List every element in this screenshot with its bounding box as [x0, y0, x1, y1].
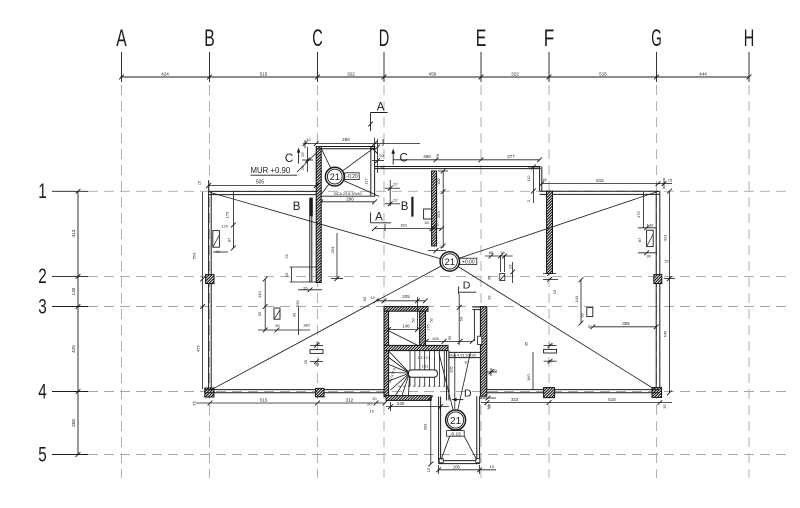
svg-text:50: 50: [448, 336, 452, 340]
svg-text:5: 5: [38, 443, 47, 466]
svg-text:240: 240: [397, 401, 405, 406]
svg-text:131: 131: [422, 363, 429, 368]
svg-text:1 3 1 3 1: 1 3 1 3 1: [418, 356, 431, 360]
svg-text:179: 179: [225, 211, 230, 218]
svg-text:2: 2: [38, 265, 47, 288]
svg-text:MUR +0.90: MUR +0.90: [251, 166, 291, 175]
svg-text:B: B: [293, 201, 301, 213]
svg-text:205: 205: [450, 366, 454, 372]
svg-text:515: 515: [260, 71, 268, 76]
svg-text:D: D: [463, 280, 471, 292]
svg-text:15: 15: [426, 467, 431, 472]
svg-text:105: 105: [432, 336, 439, 341]
svg-text:545: 545: [663, 330, 668, 337]
svg-text:26: 26: [300, 152, 305, 157]
svg-text:3: 3: [38, 295, 47, 318]
svg-text:322: 322: [511, 71, 519, 76]
svg-text:515: 515: [260, 398, 268, 403]
svg-text:21: 21: [445, 257, 456, 268]
svg-text:106: 106: [453, 464, 461, 469]
svg-text:10: 10: [434, 222, 439, 227]
svg-text:35: 35: [488, 276, 492, 280]
svg-text:553: 553: [191, 252, 196, 259]
svg-text:55: 55: [257, 311, 262, 316]
svg-text:183: 183: [400, 223, 407, 228]
svg-text:102: 102: [436, 177, 441, 184]
svg-text:180: 180: [303, 322, 310, 327]
svg-text:195: 195: [296, 300, 300, 306]
svg-text:322: 322: [347, 71, 355, 76]
svg-text:87: 87: [227, 237, 232, 242]
svg-text:20: 20: [439, 244, 444, 249]
svg-text:140: 140: [574, 295, 579, 302]
svg-text:15: 15: [552, 289, 557, 294]
svg-text:1: 1: [38, 180, 47, 203]
svg-text:205: 205: [402, 294, 410, 299]
svg-text:-0.20: -0.20: [346, 174, 358, 180]
svg-text:112: 112: [526, 175, 531, 182]
svg-text:35: 35: [524, 342, 528, 346]
svg-text:20: 20: [372, 397, 376, 401]
svg-text:C: C: [312, 25, 323, 52]
svg-text:22: 22: [393, 198, 398, 203]
svg-text:15: 15: [198, 181, 202, 185]
svg-text:-0.15: -0.15: [450, 431, 461, 437]
svg-text:305: 305: [622, 321, 630, 326]
svg-text:B: B: [401, 201, 409, 213]
svg-text:15: 15: [487, 403, 492, 408]
svg-text:G: G: [651, 25, 662, 52]
svg-text:425: 425: [71, 345, 76, 353]
svg-text:87: 87: [637, 237, 642, 242]
svg-text:30: 30: [291, 312, 296, 317]
svg-text:20: 20: [300, 165, 305, 170]
svg-text:20: 20: [303, 359, 308, 364]
svg-text:30: 30: [646, 254, 651, 259]
svg-text:53: 53: [379, 153, 384, 158]
svg-text:C: C: [399, 153, 407, 165]
svg-text:254: 254: [330, 246, 335, 253]
svg-text:21: 21: [330, 172, 340, 182]
svg-text:10: 10: [370, 408, 375, 413]
svg-text:20: 20: [284, 272, 289, 277]
svg-text:303: 303: [423, 423, 428, 430]
svg-text:140: 140: [71, 287, 76, 295]
svg-text:456: 456: [429, 71, 437, 76]
svg-text:4: 4: [38, 380, 47, 403]
svg-text:30: 30: [275, 323, 280, 328]
svg-text:A: A: [375, 212, 383, 224]
svg-text:H: H: [744, 25, 755, 52]
svg-text:117: 117: [363, 177, 368, 184]
svg-text:E: E: [476, 25, 487, 52]
svg-text:10: 10: [464, 359, 469, 364]
svg-text:424: 424: [161, 71, 169, 76]
svg-text:515: 515: [608, 397, 616, 402]
svg-text:78: 78: [436, 154, 440, 158]
svg-text:15: 15: [664, 259, 669, 264]
svg-text:413: 413: [663, 234, 668, 241]
svg-text:23: 23: [315, 340, 320, 345]
svg-text:322: 322: [511, 397, 519, 402]
svg-text:22: 22: [284, 253, 289, 258]
svg-text:A: A: [116, 25, 127, 52]
svg-text:505: 505: [256, 180, 265, 186]
svg-text:515: 515: [599, 71, 607, 76]
svg-text:15: 15: [662, 404, 667, 409]
svg-text:120: 120: [221, 223, 228, 228]
svg-text:290: 290: [346, 196, 354, 201]
svg-text:29: 29: [508, 264, 512, 268]
svg-text:22: 22: [393, 181, 398, 186]
svg-text:45: 45: [543, 178, 547, 182]
svg-text:456: 456: [423, 154, 431, 159]
svg-text:29: 29: [488, 295, 492, 299]
svg-text:312: 312: [346, 397, 354, 402]
svg-text:140: 140: [257, 290, 262, 297]
svg-text:515: 515: [596, 178, 604, 183]
svg-text:+0.00: +0.00: [462, 259, 475, 265]
svg-text:50: 50: [459, 316, 464, 321]
svg-text:10: 10: [490, 464, 495, 469]
svg-text:160: 160: [526, 373, 531, 380]
svg-text:A: A: [377, 102, 385, 114]
svg-text:F: F: [544, 25, 555, 52]
svg-text:10: 10: [370, 295, 375, 300]
svg-text:444: 444: [699, 71, 707, 76]
svg-text:10: 10: [306, 137, 311, 142]
svg-text:15: 15: [668, 177, 673, 182]
svg-text:277: 277: [507, 154, 515, 159]
svg-text:413: 413: [71, 229, 76, 237]
svg-text:B: B: [204, 25, 215, 52]
svg-text:D: D: [379, 25, 390, 52]
svg-text:175: 175: [426, 324, 430, 330]
svg-text:BGA 4.01 20x30: BGA 4.01 20x30: [448, 354, 476, 358]
svg-text:50: 50: [429, 318, 433, 322]
svg-text:50: 50: [412, 318, 416, 322]
svg-text:20: 20: [367, 401, 372, 406]
svg-text:50: 50: [362, 296, 367, 301]
svg-text:179: 179: [636, 210, 641, 217]
svg-text:140: 140: [403, 323, 411, 328]
svg-text:253: 253: [436, 210, 441, 217]
svg-text:425: 425: [196, 344, 201, 351]
svg-text:358: 358: [71, 419, 76, 427]
svg-text:C: C: [285, 153, 293, 165]
svg-text:D: D: [464, 388, 472, 400]
svg-text:260: 260: [342, 137, 350, 142]
svg-text:15: 15: [191, 400, 196, 405]
svg-text:30: 30: [424, 220, 429, 225]
svg-text:30: 30: [379, 165, 384, 170]
svg-text:21: 21: [450, 416, 462, 427]
